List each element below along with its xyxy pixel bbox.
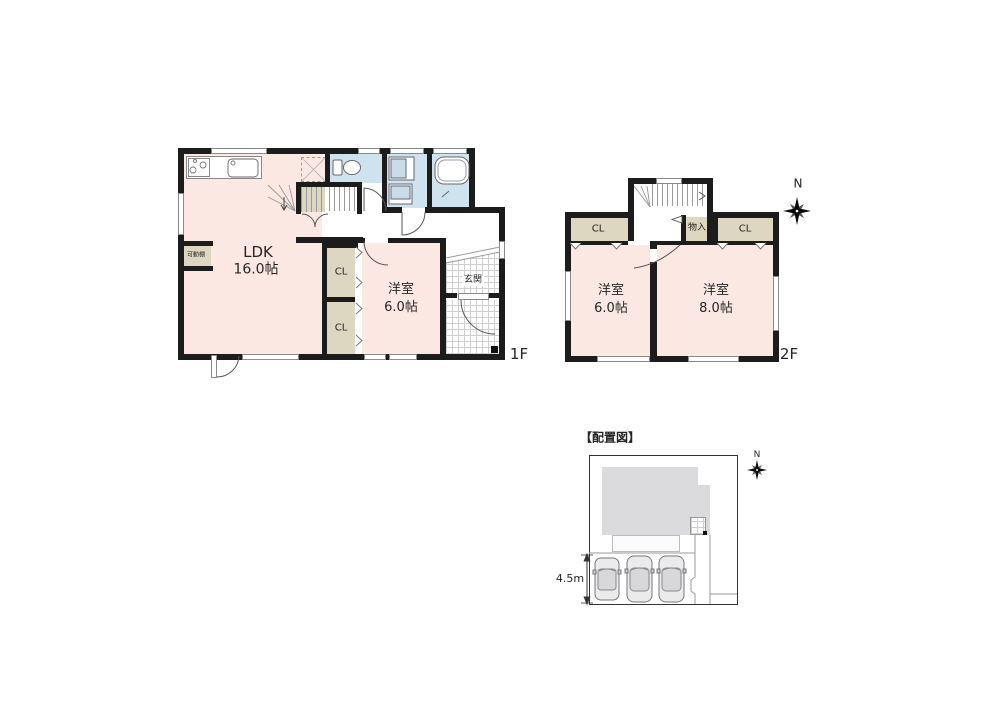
bedroom-1f-size: 6.0帖 xyxy=(384,301,418,315)
stove xyxy=(188,158,210,177)
floor2-label: 2F xyxy=(780,346,798,363)
window xyxy=(211,148,267,154)
wall xyxy=(713,212,779,218)
wall xyxy=(298,182,362,187)
wall xyxy=(425,207,473,213)
wall xyxy=(382,207,402,213)
porch-marker xyxy=(491,346,498,353)
wall xyxy=(657,241,686,245)
wall xyxy=(565,212,628,218)
entrance-hall-tile xyxy=(446,250,499,295)
wall xyxy=(357,182,362,214)
window xyxy=(499,241,505,259)
wall xyxy=(355,238,365,243)
bedroom-1f-name: 洋室 xyxy=(388,283,414,297)
bedroom-2f-right-size: 8.0帖 xyxy=(699,302,733,316)
stairs-2f-treads xyxy=(652,184,707,206)
bedroom-2f-left-size: 6.0帖 xyxy=(594,302,628,316)
wall xyxy=(382,148,387,207)
window xyxy=(364,354,386,360)
movable-shelf-label: 可動棚 xyxy=(187,253,205,260)
wall xyxy=(628,212,634,241)
wall xyxy=(178,354,505,360)
wall xyxy=(296,182,301,214)
wall xyxy=(322,243,358,248)
wall xyxy=(565,241,628,245)
front-door-leaf xyxy=(458,293,489,300)
site-plan-title: 【配置図】 xyxy=(580,431,640,444)
stairs-mid-flight xyxy=(301,186,325,212)
closet-upper-label: CL xyxy=(335,267,348,278)
bathroom xyxy=(430,153,471,208)
site-compass-icon xyxy=(747,460,767,480)
window xyxy=(565,271,571,321)
bedroom-2f-left-name: 洋室 xyxy=(598,284,624,298)
site-compass-north-label: N xyxy=(754,451,761,461)
ldk-name: LDK xyxy=(243,244,273,261)
site-porch-marker xyxy=(703,531,707,535)
floorplan-canvas: LDK 16.0帖 洋室 6.0帖 CL CL 可動棚 玄関 1F xyxy=(0,0,1000,706)
window xyxy=(433,148,467,154)
window xyxy=(389,354,417,360)
wall xyxy=(446,293,457,298)
wall xyxy=(681,241,779,245)
site-building-footprint xyxy=(602,467,698,535)
storage-label: 物入 xyxy=(688,224,706,234)
wall xyxy=(427,148,432,207)
window xyxy=(656,178,682,184)
wall xyxy=(178,266,213,271)
stairs-winder-2f xyxy=(634,186,650,207)
ldk-size: 16.0帖 xyxy=(233,262,278,277)
wall xyxy=(650,262,657,356)
window xyxy=(390,148,424,154)
terrace-door-leaf xyxy=(211,355,217,378)
closet-2f-right-label: CL xyxy=(739,224,752,235)
window xyxy=(358,148,380,154)
stairs-upper-flight xyxy=(329,186,357,211)
pantry-hatch xyxy=(301,157,326,182)
entrance-label: 玄関 xyxy=(462,276,484,286)
wall xyxy=(713,217,718,241)
wall xyxy=(325,297,355,302)
wall xyxy=(388,238,444,243)
wall xyxy=(469,148,475,213)
wall xyxy=(650,241,657,249)
site-terrace-apron xyxy=(612,535,680,552)
toilet-room xyxy=(330,153,382,183)
window xyxy=(178,193,184,235)
wall xyxy=(499,207,505,360)
parking-depth-label: 4.5m xyxy=(554,573,586,585)
compass-north-label: N xyxy=(794,177,803,190)
closet-2f-left-label: CL xyxy=(592,224,605,235)
bedroom-2f-right-name: 洋室 xyxy=(703,284,729,298)
window xyxy=(688,356,739,362)
floor1-label: 1F xyxy=(510,346,528,363)
washroom xyxy=(385,153,429,208)
window xyxy=(773,276,779,331)
wall xyxy=(681,215,686,241)
wall xyxy=(178,148,184,360)
compass-icon xyxy=(783,197,811,225)
window xyxy=(242,354,299,360)
closet-lower-label: CL xyxy=(335,323,348,334)
wall xyxy=(178,241,213,246)
window xyxy=(597,356,650,362)
